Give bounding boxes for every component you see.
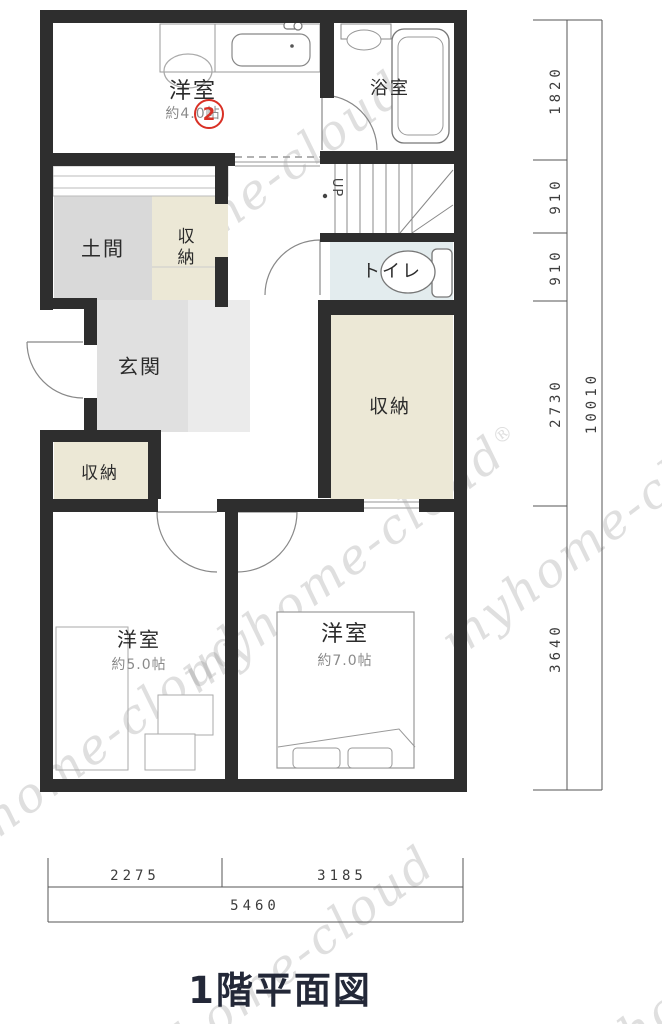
- wall-storage-left-side: [148, 430, 161, 499]
- bathroom-door-arc: [322, 95, 377, 150]
- drain-dot: [290, 44, 294, 48]
- wall-outer-left-lower: [40, 430, 53, 792]
- dimension-value: 910: [548, 177, 564, 214]
- room-label-storage-left: 収納: [81, 459, 119, 484]
- room-label-toilet: トイレ: [362, 257, 422, 283]
- wall-entry-alcove: [84, 298, 97, 345]
- wall-bedrooms-top: [40, 499, 158, 512]
- wall-interior: [215, 257, 228, 307]
- wall-bedrooms-top: [419, 499, 467, 512]
- wall-bathroom-left: [320, 10, 334, 98]
- stair-winder: [412, 205, 453, 233]
- room-label-bathroom: 浴室: [370, 74, 410, 100]
- room-label-doma: 土間: [81, 233, 125, 262]
- bath-basin-icon: [347, 30, 381, 50]
- circled-number-badge: 2: [194, 99, 224, 129]
- badge-number: 2: [203, 104, 216, 125]
- dimension-total-value: 5460: [230, 898, 280, 914]
- dimension-value: 1820: [548, 65, 564, 115]
- room-label-western5: 洋室: [117, 624, 161, 653]
- wall-outer-bottom: [40, 779, 467, 792]
- pillow-icon: [348, 748, 392, 768]
- wall-interior: [318, 300, 467, 315]
- room-size-western5: 約5.0帖: [111, 654, 166, 674]
- toilet-door-arc: [265, 240, 320, 295]
- wall-entry-jog: [40, 430, 160, 442]
- wall-storage-left: [318, 300, 331, 498]
- wall-interior: [40, 153, 235, 166]
- dimension-total-value: 10010: [584, 372, 600, 434]
- furniture-outline: [145, 734, 195, 770]
- left-room-door-arc: [157, 512, 217, 572]
- wall-outer-top: [40, 10, 467, 23]
- wall-outer-right: [454, 10, 467, 792]
- dimension-value: 910: [548, 248, 564, 285]
- furniture-outline: [158, 695, 213, 735]
- kitchen-sink-icon: [232, 34, 310, 66]
- wall-bedrooms-divider: [225, 499, 238, 792]
- room-label-storage-big: 収納: [369, 392, 411, 419]
- dimension-value: 3640: [548, 623, 564, 673]
- floor-plan-page: myhome-cloud myhome-cloud® myhome-cloud …: [0, 0, 662, 1024]
- stairs-up-label: UP: [329, 178, 344, 197]
- wall-interior: [215, 153, 228, 204]
- right-room-door-arc: [237, 512, 297, 572]
- faucet-icon: [294, 22, 302, 30]
- wall-interior: [320, 233, 467, 242]
- window-band: [53, 166, 228, 196]
- entrance-door-arc: [27, 342, 83, 398]
- room-size-western7: 約7.0帖: [317, 650, 372, 670]
- page-title: 1階平面図: [120, 960, 440, 1014]
- dimension-value: 2275: [110, 868, 160, 884]
- wall-interior: [320, 151, 467, 164]
- pillow-icon: [293, 748, 340, 768]
- room-label-western7: 洋室: [321, 616, 369, 648]
- room-label-storage-top: 収納: [172, 227, 197, 269]
- dimension-value: 2730: [548, 378, 564, 428]
- dimension-value: 3185: [317, 868, 367, 884]
- wall-bedrooms-top: [297, 499, 364, 512]
- room-label-genkan: 玄関: [118, 351, 162, 380]
- stair-post-dot: [323, 194, 327, 198]
